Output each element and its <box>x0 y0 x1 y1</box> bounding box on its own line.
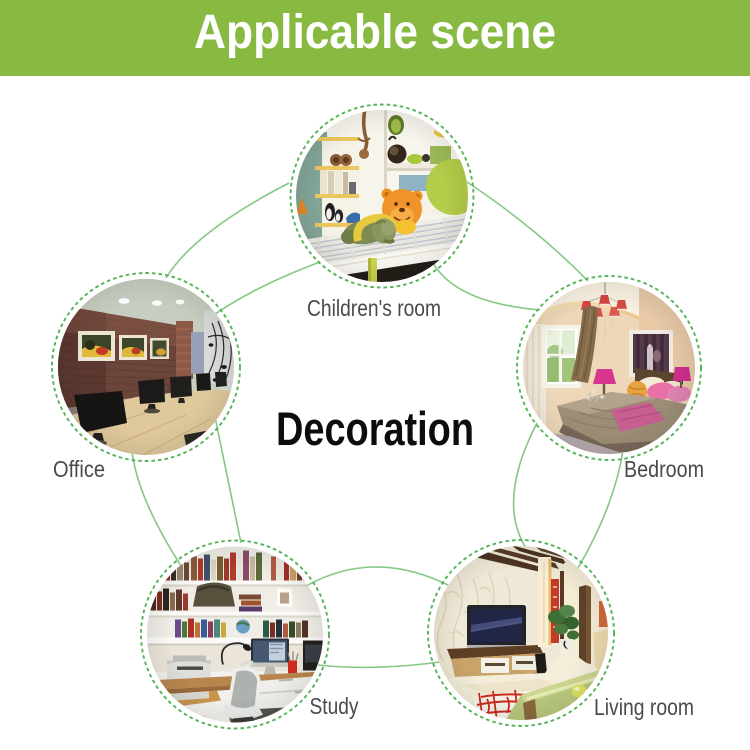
svg-text:Children's room: Children's room <box>307 295 441 321</box>
svg-text:Study: Study <box>310 693 359 719</box>
svg-text:Decoration: Decoration <box>276 402 474 455</box>
svg-text:Office: Office <box>53 456 105 482</box>
svg-text:Bedroom: Bedroom <box>624 456 704 482</box>
svg-text:Applicable scene: Applicable scene <box>194 6 556 59</box>
svg-text:Living room: Living room <box>594 694 694 720</box>
